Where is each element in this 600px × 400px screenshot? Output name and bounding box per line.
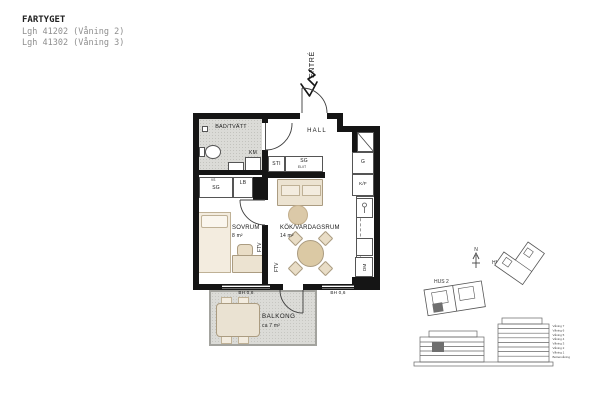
wall-bottom-1 xyxy=(193,284,222,290)
wall-bedroom-kitchen xyxy=(262,225,268,284)
floor-label-ground: Bottenvåning xyxy=(553,355,571,359)
bedroom-closet-vs-label: VS xyxy=(211,179,215,182)
wardrobe-label: G xyxy=(352,160,374,165)
hus2-footprint xyxy=(424,281,485,316)
wall-hall-closet-bottom xyxy=(268,172,325,178)
shaft-box xyxy=(357,132,374,152)
wall-right xyxy=(374,126,380,290)
fridge-freezer-label: K/F xyxy=(352,182,374,187)
tv-outlet-kitchen-label: FTV xyxy=(274,262,280,272)
bedroom-area: 8 m² xyxy=(232,234,243,239)
bedroom-door-swing xyxy=(240,200,265,225)
floor-label-2: Våning 2 xyxy=(553,346,565,350)
wall-shaft-left xyxy=(352,132,357,152)
sofa-cushion-right xyxy=(302,185,321,196)
north-label: N xyxy=(474,247,478,253)
wall-bathroom-bottom xyxy=(193,170,267,175)
bathroom-label: BAD/TVÄTT xyxy=(205,125,257,130)
hall-closet-sg-sub-label: EL/IT xyxy=(298,166,306,169)
sill-height-right: BH 0,6 xyxy=(322,291,354,296)
floor-label-3: Våning 3 xyxy=(553,342,565,346)
floor-label-7: Våning 7 xyxy=(553,324,565,328)
balcony-area: ca 7 m² xyxy=(262,324,280,329)
balcony-table xyxy=(216,303,260,337)
wall-top-left xyxy=(193,113,300,119)
ground-line xyxy=(414,362,553,366)
washing-machine-label: KM xyxy=(242,151,264,156)
floor-plan-page: FARTYGET Lgh 41202 (Våning 2) Lgh 41302 … xyxy=(0,0,600,400)
elevation-floor-marker xyxy=(432,342,444,352)
wall-bottom-2 xyxy=(270,284,283,290)
wall-left xyxy=(193,113,199,290)
wall-bathroom-door-stub xyxy=(262,119,268,123)
bedroom-label: SOVRUM xyxy=(232,225,260,231)
dining-table xyxy=(297,240,324,267)
wall-kitchen-corner xyxy=(352,277,380,284)
entrance-door-swing xyxy=(302,88,327,113)
hall-closet-sti-label: STI xyxy=(268,162,285,167)
floor-label-1: Våning 1 xyxy=(553,350,565,354)
apartment-id-2: Lgh 41302 (Våning 3) xyxy=(22,38,124,48)
balcony-label: BALKONG xyxy=(262,314,295,320)
sill-height-left: BH 0,6 xyxy=(222,291,270,296)
entry-arrow-icon xyxy=(301,70,317,96)
round-rug xyxy=(288,205,308,225)
floor-label-5: Våning 5 xyxy=(553,333,565,337)
desk xyxy=(232,255,263,273)
washing-machine xyxy=(245,157,261,171)
north-arrow-icon xyxy=(472,253,480,268)
wall-bottom-3 xyxy=(303,284,322,290)
bed-pillow xyxy=(201,215,228,228)
dining-chair-4 xyxy=(318,261,334,277)
project-title: FARTYGET xyxy=(22,15,65,25)
wall-closet-chunk xyxy=(253,177,268,200)
dishwasher-box xyxy=(355,257,373,277)
hall-closet-sg-label: SG xyxy=(285,159,323,164)
floor-label-4: Våning 4 xyxy=(553,337,565,341)
kitchen-area: 14 m² xyxy=(280,234,294,239)
wall-bottom-4 xyxy=(354,284,380,290)
balcony-chair-4 xyxy=(238,336,249,344)
hall-label: HALL xyxy=(300,128,334,134)
balcony-chair-3 xyxy=(221,336,232,344)
stove-box xyxy=(356,238,373,256)
entry-label: ENTRÉ xyxy=(307,51,316,78)
elevation-drawing xyxy=(414,318,553,366)
floor-label-6: Våning 6 xyxy=(553,328,565,332)
kitchen-sink-box xyxy=(356,198,373,218)
bedroom-closet-lb-label: LB xyxy=(233,181,253,186)
toilet-icon xyxy=(205,145,221,159)
bathroom-door-swing xyxy=(266,123,293,150)
sofa-cushion-left xyxy=(281,185,300,196)
elevation-floor-labels: Våning 7 Våning 6 Våning 5 Våning 4 Våni… xyxy=(553,324,571,359)
hus1-footprint xyxy=(495,234,545,285)
kitchen-label: KÖK/VARDAGSRUM xyxy=(280,225,340,231)
hus1-label: HUS 1 xyxy=(492,260,507,266)
bedroom-closet-sg-label: SG xyxy=(199,186,233,191)
hus2-label: HUS 2 xyxy=(434,279,449,285)
apartment-id-1: Lgh 41202 (Våning 2) xyxy=(22,27,124,37)
apartment-location-marker xyxy=(432,302,443,312)
